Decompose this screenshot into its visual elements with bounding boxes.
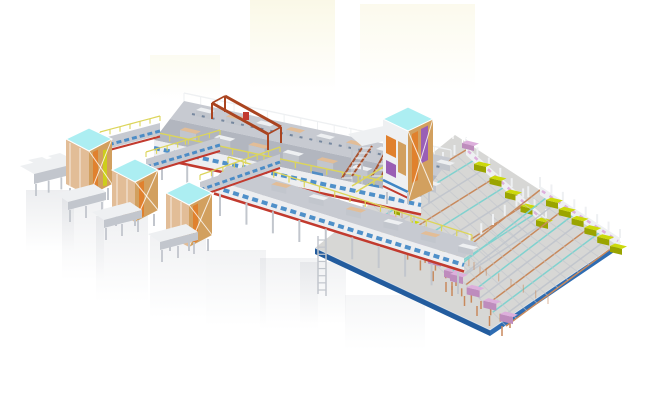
- plant-3d-render: [0, 0, 650, 418]
- ambient-tint: [150, 0, 475, 100]
- render-canvas: [0, 0, 650, 418]
- crane-hoist: [243, 112, 249, 120]
